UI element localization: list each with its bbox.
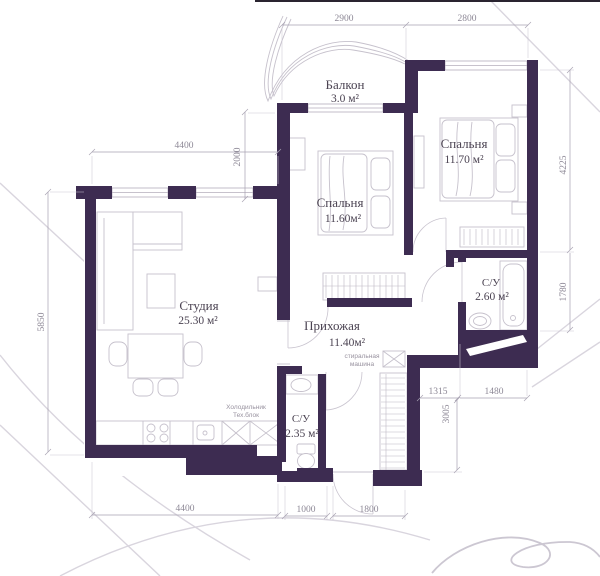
dim-bedroom-right-height: 4225 xyxy=(559,155,569,174)
room-label-bedroom-center: Спальня xyxy=(317,195,364,210)
dining-chair-left xyxy=(109,342,127,366)
note-fridge-1: Холодильник xyxy=(226,404,266,411)
room-label-bedroom-right: Спальня xyxy=(441,136,488,151)
room-label-balcony: Балкон xyxy=(326,77,365,92)
room-area-bathroom-lower: 2.35 м² xyxy=(285,428,319,440)
dining-chair-bottom2 xyxy=(158,379,178,396)
room-area-balcony: 3.0 м² xyxy=(331,93,360,105)
decor-diagonal-topleft xyxy=(0,183,85,262)
studio-window-1 xyxy=(112,188,168,197)
decor-diagonal-right2 xyxy=(532,342,600,387)
dining-chair-right xyxy=(184,342,202,366)
room-label-bathroom-lower: С/У xyxy=(292,413,310,425)
dim-bathroom-right-width: 1480 xyxy=(485,387,504,397)
pillow xyxy=(496,124,515,156)
dim-bathroom-lower-width: 1000 xyxy=(297,505,316,515)
washing-machine-icon xyxy=(383,351,405,367)
studio-tv-stand xyxy=(258,277,277,291)
dim-balcony-width: 2900 xyxy=(335,14,354,24)
note-fridge-2: Тех.блок xyxy=(233,411,259,419)
bedroom-center-wardrobe xyxy=(323,273,405,300)
top-edge-artifact xyxy=(255,0,600,2)
balcony-door-window xyxy=(308,104,383,112)
decor-swirl-bottomright xyxy=(432,537,600,573)
bathroom-right-sink-icon xyxy=(469,313,491,329)
room-area-bathroom-right: 2.60 м² xyxy=(475,291,509,303)
dining-table xyxy=(128,334,183,378)
dim-bedroom-right-width: 2800 xyxy=(458,14,477,24)
dim-entrance-width: 1800 xyxy=(360,505,379,515)
toilet-icon xyxy=(297,444,315,469)
dining-chair-bottom1 xyxy=(133,379,153,396)
pillow xyxy=(371,158,390,190)
dim-bathroom-right-height: 1780 xyxy=(559,282,569,301)
room-area-studio: 25.30 м² xyxy=(178,315,218,327)
nightstand xyxy=(512,105,527,117)
pillow xyxy=(496,160,515,192)
room-label-studio: Студия xyxy=(179,298,218,313)
wall-notch xyxy=(282,462,297,471)
bedroom-right-window xyxy=(445,61,527,70)
floor-plan: Балкон 3.0 м² Спальня 11.60м² Спальня 11… xyxy=(0,0,600,576)
dim-left-height: 5850 xyxy=(37,312,47,331)
dim-recess-height: 2000 xyxy=(233,147,243,166)
pillow xyxy=(371,196,390,228)
kitchen-counter xyxy=(96,421,282,445)
hallway-closet xyxy=(380,373,407,470)
dim-studio-width-bottom: 4400 xyxy=(176,504,195,514)
bathroom-lower-sink-icon xyxy=(286,375,318,394)
room-area-bedroom-right: 11.70 м² xyxy=(444,154,484,166)
room-label-bathroom-right: С/У xyxy=(482,277,500,289)
floor-plan-page: Балкон 3.0 м² Спальня 11.60м² Спальня 11… xyxy=(0,0,600,576)
dim-nook-width: 1315 xyxy=(429,387,448,397)
bedroom-right-dresser xyxy=(414,136,424,188)
nightstand xyxy=(512,202,527,214)
dim-studio-width-top: 4400 xyxy=(175,141,194,151)
room-label-hallway: Прихожая xyxy=(304,318,360,333)
note-washing-machine-2: машина xyxy=(350,361,375,368)
decor-arc-bottom xyxy=(60,518,430,576)
bedroom-right-wardrobe xyxy=(460,227,524,247)
note-washing-machine-1: стиральная xyxy=(345,353,380,360)
room-area-hallway: 11.40м² xyxy=(329,337,366,349)
studio-coffee-table xyxy=(147,274,175,308)
bedroom-center-dresser xyxy=(288,138,305,170)
studio-window-2 xyxy=(196,188,253,197)
dim-hall-lower-height: 3005 xyxy=(442,404,452,423)
room-area-bedroom-center: 11.60м² xyxy=(325,213,362,225)
